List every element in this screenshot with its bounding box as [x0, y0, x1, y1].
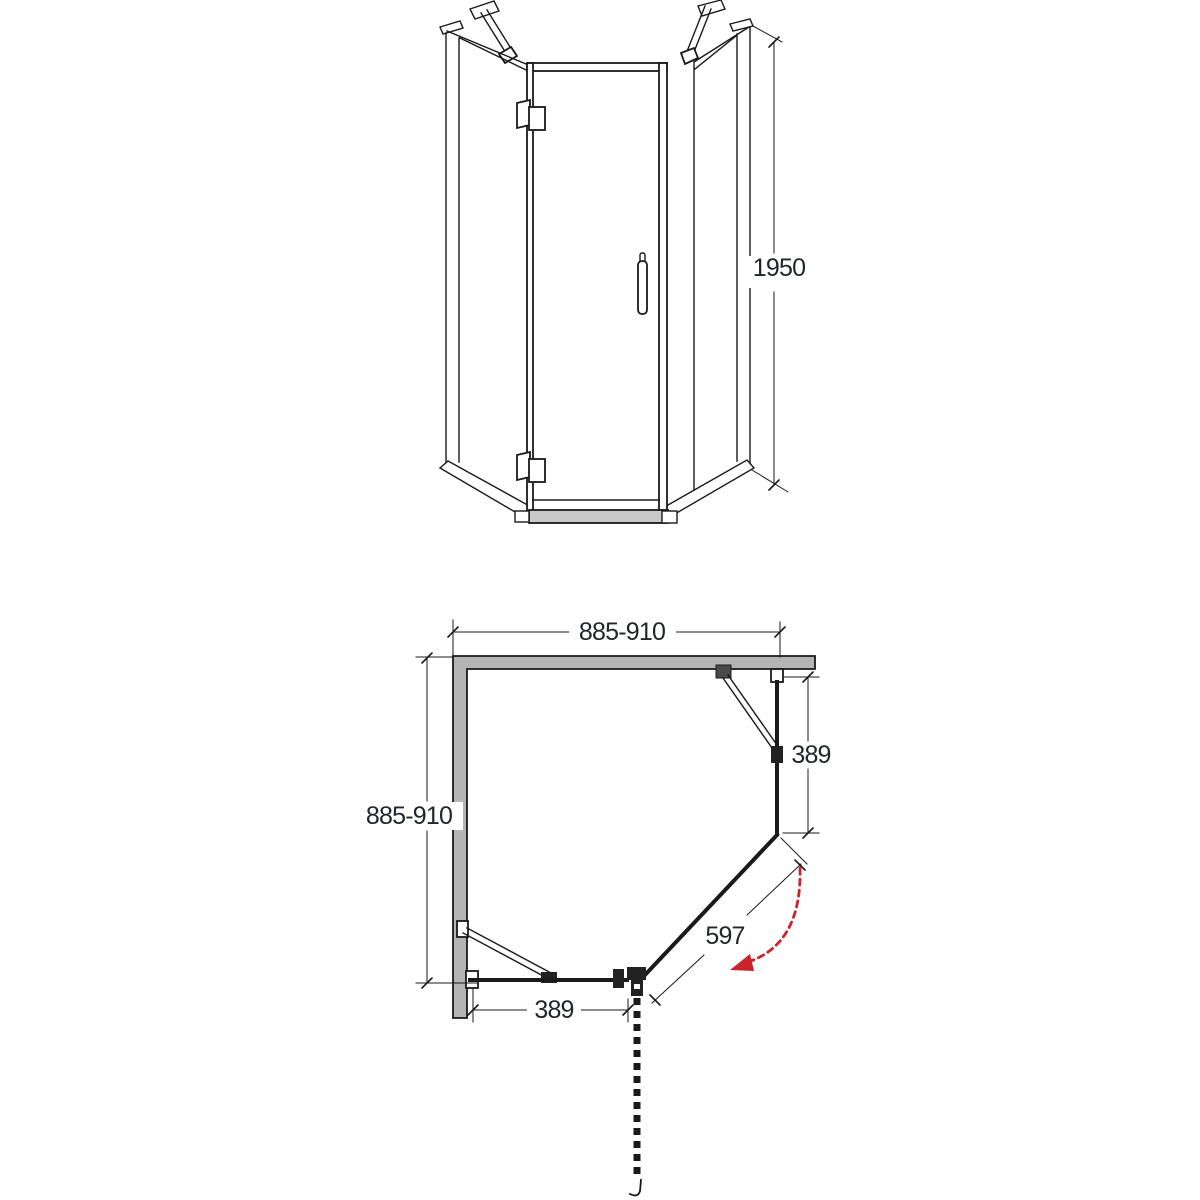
bottom-rail [529, 510, 668, 523]
front-elevation-view: 1950 [440, 0, 812, 523]
side-panel-right [661, 19, 754, 518]
door-swing-arrow-icon [730, 868, 800, 971]
plan-bottom-panel [457, 921, 627, 988]
dimension-height: 1950 [746, 26, 812, 492]
door-pivot [627, 967, 646, 996]
dimension-bottom-panel: 389 [468, 988, 633, 1024]
brace-clamp [771, 746, 783, 763]
rail-foot-left [515, 511, 529, 522]
dimension-door: 597 [650, 838, 807, 1005]
shower-door-front [515, 63, 677, 523]
height-dimension-label: 1950 [753, 254, 805, 282]
wall-bracket-right [681, 0, 725, 64]
side-panel-left [440, 21, 533, 519]
door-handle [638, 253, 647, 314]
plan-view: 885-910 885-910 389 [355, 618, 837, 1195]
bottom-panel-dimension-label: 389 [534, 996, 573, 1024]
technical-drawing-page: 1950 [0, 0, 1200, 1200]
dimension-right-panel: 389 [783, 672, 837, 838]
wall-section [453, 656, 815, 1018]
door-dimension-label: 597 [705, 922, 744, 950]
dimension-width: 885-910 [448, 618, 785, 657]
width-dimension-label: 885-910 [579, 618, 665, 646]
right-panel-dimension-label: 389 [791, 741, 830, 769]
shower-enclosure-drawing: 1950 [0, 0, 1200, 1200]
rail-foot-right [662, 511, 677, 523]
plan-right-panel [716, 665, 783, 834]
open-door-handle [630, 1180, 641, 1195]
plan-door [627, 835, 777, 1195]
depth-dimension-label: 885-910 [366, 802, 452, 830]
